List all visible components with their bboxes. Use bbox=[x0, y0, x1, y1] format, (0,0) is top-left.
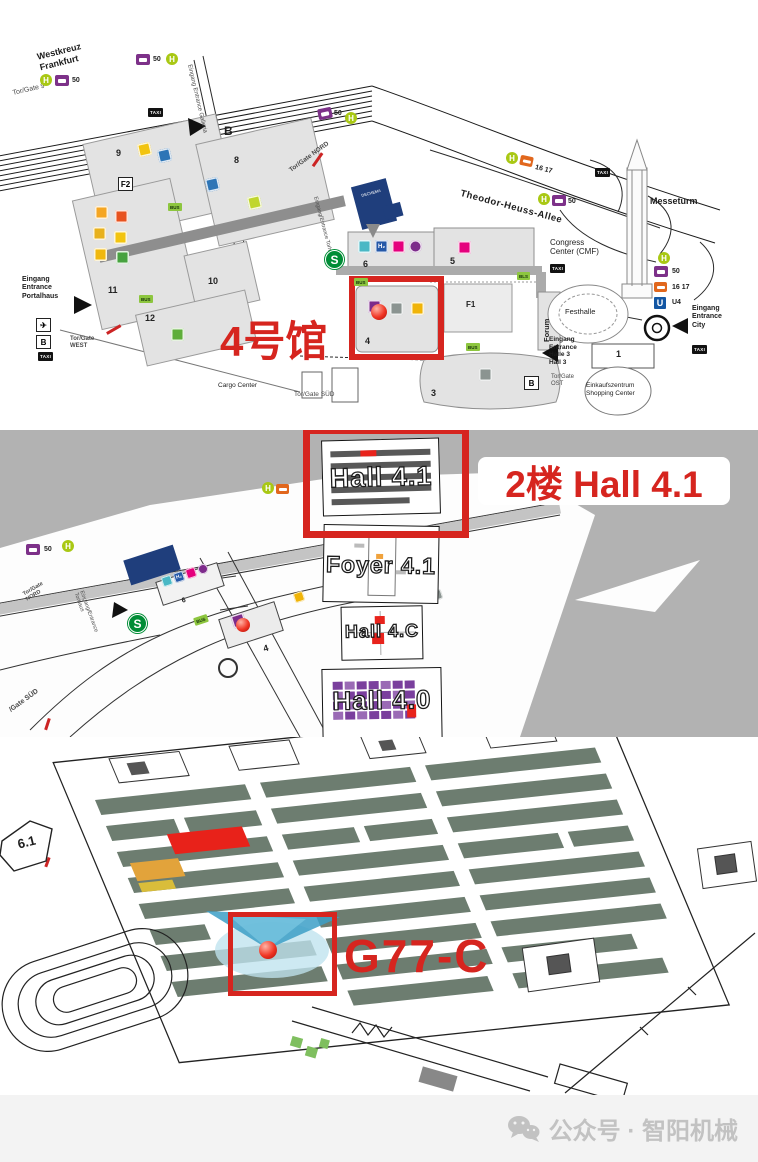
tram-icon bbox=[55, 75, 69, 86]
event-icon bbox=[114, 231, 127, 244]
line-50-label: 50 bbox=[568, 198, 576, 206]
tor-gate-west-label: Tor/Gate WEST bbox=[70, 336, 94, 350]
line-50-label: 50 bbox=[334, 110, 342, 118]
overview-map-graphic bbox=[0, 0, 758, 430]
event-icon bbox=[458, 241, 471, 254]
hall-levels-panel: S 50 H H H₂ BUS 4 6 Tor/Gate NORD Eingan… bbox=[0, 430, 758, 737]
shopping-center-label: Einkaufszentrum Shopping Center bbox=[586, 382, 635, 397]
city-roundabout bbox=[645, 316, 669, 340]
restaurant-icon bbox=[479, 368, 492, 381]
legend-tram-icon bbox=[654, 266, 668, 277]
tor-gate-sued-label: Tor/Gate SÜD bbox=[294, 391, 334, 399]
restaurant-icon bbox=[390, 302, 403, 315]
event-icon bbox=[93, 227, 106, 240]
event-icon bbox=[95, 206, 108, 219]
hall-4-label: 4 bbox=[365, 336, 370, 347]
taxi-icon: TAXI bbox=[38, 352, 53, 361]
messeturm-label: Messeturm bbox=[650, 196, 698, 207]
hall-1-label: 1 bbox=[616, 349, 621, 360]
festhalle-label: Festhalle bbox=[565, 308, 595, 317]
wechat-icon bbox=[507, 1115, 541, 1143]
sbahn-icon: S bbox=[325, 250, 344, 269]
overview-map-panel: 9 8 F2 11 10 12 6 5 4 3 F1 1 Forum Westk… bbox=[0, 0, 758, 430]
tram-stop-icon: H bbox=[62, 540, 74, 552]
hall-f2-label: F2 bbox=[118, 177, 133, 191]
line-50-label: 50 bbox=[153, 56, 161, 64]
location-sphere-icon bbox=[236, 618, 250, 632]
hall-40-card: Hall 4.0 bbox=[321, 667, 442, 737]
hall-41-card-label: Hall 4.1 bbox=[323, 460, 440, 494]
bus-stop-icon: BUS bbox=[466, 343, 480, 351]
hall-4c-card: Hall 4.C bbox=[341, 605, 424, 660]
hall-8-label: 8 bbox=[234, 155, 239, 166]
tram-stop-icon: H bbox=[262, 482, 274, 494]
tram-icon bbox=[136, 54, 150, 65]
legend-line-50: 50 bbox=[672, 268, 680, 276]
event-icon bbox=[411, 302, 424, 315]
event-icon bbox=[94, 248, 107, 261]
legend-tram-16-17-icon bbox=[654, 282, 667, 292]
legend-tram-stop-icon: H bbox=[658, 252, 670, 264]
event-icon bbox=[115, 210, 128, 223]
level-highlight-band: 2楼 Hall 4.1 bbox=[478, 457, 730, 505]
tram-icon bbox=[26, 544, 40, 555]
hall4-highlight-label: 4号馆 bbox=[220, 308, 327, 369]
airport-icon: ✈ bbox=[36, 318, 51, 332]
hall-11-label: 11 bbox=[108, 285, 118, 296]
foyer-41-card: Foyer 4.1 bbox=[322, 524, 439, 604]
line-50-label: 50 bbox=[72, 77, 80, 85]
bus-stop-icon: BUS bbox=[354, 278, 368, 286]
event-icon bbox=[116, 251, 129, 264]
booth-rows bbox=[53, 737, 729, 1063]
tram-icon bbox=[552, 195, 566, 206]
sbahn-icon: S bbox=[128, 614, 147, 633]
watermark: 公众号 · 智阳机械 bbox=[507, 1111, 738, 1146]
tram-stop-icon: H bbox=[40, 74, 52, 86]
bus-stop-icon: BUS bbox=[168, 203, 182, 211]
eingang-halle3-label: Eingang Entrance Halle 3 Hall 3 bbox=[549, 336, 577, 367]
hall-12-label: 12 bbox=[145, 313, 155, 324]
level-highlight-label: 2楼 Hall 4.1 bbox=[505, 454, 702, 508]
bls-stop-icon: BLS bbox=[517, 272, 530, 280]
b-road-icon: B bbox=[524, 376, 539, 390]
messeturm-tower bbox=[622, 140, 652, 298]
location-sphere-icon bbox=[371, 304, 387, 320]
booth-number-label: G77-C bbox=[344, 929, 489, 983]
line-50-label: 50 bbox=[44, 546, 52, 554]
hall-f1-label: F1 bbox=[466, 300, 475, 309]
eingang-portalhaus-label: Eingang Entrance Portalhaus bbox=[22, 276, 58, 301]
legend-ubahn-icon: U bbox=[654, 297, 666, 309]
b-road-icon: B bbox=[36, 335, 51, 349]
taxi-icon: TAXI bbox=[550, 264, 565, 273]
tram-stop-icon: H bbox=[506, 152, 518, 164]
watermark-label: 公众号 · 智阳机械 bbox=[549, 1111, 738, 1146]
street-b-sign: B bbox=[224, 124, 233, 138]
booth-highlight bbox=[360, 450, 376, 456]
hall-40-card-label: Hall 4.0 bbox=[323, 684, 442, 717]
dechema-building bbox=[351, 178, 404, 230]
exhibition-location-guide: 9 8 F2 11 10 12 6 5 4 3 F1 1 Forum Westk… bbox=[0, 0, 758, 1162]
tram-stop-icon: H bbox=[538, 193, 550, 205]
event-icon bbox=[358, 240, 371, 253]
legend-line-16-17: 16 17 bbox=[672, 284, 690, 292]
tram-stop-icon: H bbox=[166, 53, 178, 65]
taxi-icon: TAXI bbox=[595, 168, 610, 177]
congress-center-label: Congress Center (CMF) bbox=[550, 238, 599, 257]
hall-6-label: 6 bbox=[363, 259, 368, 270]
hall-4c-card-label: Hall 4.C bbox=[342, 620, 422, 642]
eingang-city-label: Eingang Entrance City bbox=[692, 305, 722, 330]
event-icon bbox=[409, 240, 422, 253]
cargo-center-label: Cargo Center bbox=[218, 382, 257, 390]
hall-10-label: 10 bbox=[208, 276, 218, 287]
foyer-41-card-label: Foyer 4.1 bbox=[324, 551, 438, 580]
taxi-icon: TAXI bbox=[692, 345, 707, 354]
floor-plan-panel: 6.1 G77-C bbox=[0, 737, 758, 1095]
tor-gate-ost-label: Tor/Gate OST bbox=[551, 374, 574, 388]
hall-9-label: 9 bbox=[116, 148, 121, 159]
watermark-band: 公众号 · 智阳机械 bbox=[0, 1095, 758, 1162]
tram-stop-icon: H bbox=[345, 112, 357, 124]
floor-plan-graphic bbox=[0, 737, 758, 1095]
legend-line-u4: U4 bbox=[672, 299, 681, 307]
location-sphere-icon bbox=[259, 941, 277, 959]
hydrogen-icon: H₂ bbox=[375, 240, 388, 253]
event-icon bbox=[392, 240, 405, 253]
event-icon bbox=[171, 328, 184, 341]
hall-41-card: Hall 4.1 bbox=[321, 437, 441, 516]
hall-5-label: 5 bbox=[450, 256, 455, 267]
hall-3-label: 3 bbox=[431, 388, 436, 399]
tram-16-17-icon bbox=[276, 484, 289, 494]
taxi-icon: TAXI bbox=[148, 108, 163, 117]
bus-stop-icon: BUS bbox=[139, 295, 153, 303]
